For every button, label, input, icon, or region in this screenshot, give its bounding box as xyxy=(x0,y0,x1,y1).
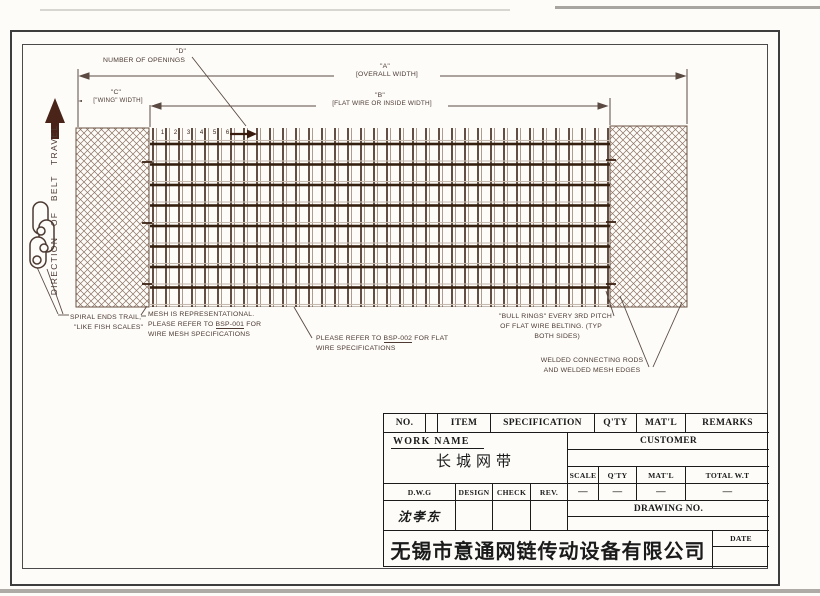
matl-label: MAT'L xyxy=(637,467,686,484)
check-label: CHECK xyxy=(493,484,531,501)
qty-label: Q'TY xyxy=(599,467,637,484)
dim-c-text: ["WING" WIDTH] xyxy=(82,96,154,105)
wire-mesh-pattern xyxy=(150,128,610,307)
dim-d-text: NUMBER OF OPENINGS xyxy=(103,56,185,65)
matl-value: — xyxy=(637,484,686,501)
welded-note-line1: WELDED CONNECTING RODS xyxy=(536,356,648,365)
work-name-label: WORK NAME xyxy=(391,436,484,449)
scale-value: — xyxy=(568,484,599,501)
drawing-no-label: DRAWING NO. xyxy=(568,501,769,517)
title-block-table: NO. ITEM SPECIFICATION Q'TY MAT'L REMARK… xyxy=(383,413,768,567)
company-name: 无锡市意通网链传动设备有限公司 xyxy=(384,531,713,568)
opening-number: 1 xyxy=(156,130,169,136)
dwg-name: 沈孝东 xyxy=(384,501,456,531)
flatwire-note-post: FOR FLAT xyxy=(412,335,448,342)
flatwire-note-pre: PLEASE REFER TO xyxy=(316,335,384,342)
header-remarks: REMARKS xyxy=(686,414,769,433)
flatwire-note-line2: WIRE SPECIFICATIONS xyxy=(316,344,396,353)
header-specification: SPECIFICATION xyxy=(491,414,595,433)
design-value-empty xyxy=(456,501,493,531)
work-name-value: 长城网带 xyxy=(384,450,568,471)
opening-number: 6 xyxy=(221,130,234,136)
direction-of-belt-travel-label: DIRECTION OF BELT TRAVEL xyxy=(49,124,59,296)
customer-label: CUSTOMER xyxy=(568,433,769,450)
dim-a-text: [OVERALL WIDTH] xyxy=(334,70,440,79)
customer-value-empty xyxy=(568,450,769,467)
header-item: ITEM xyxy=(438,414,491,433)
header-sub-col xyxy=(426,414,438,433)
opening-number: 2 xyxy=(169,130,182,136)
mesh-note-pre: PLEASE REFER TO xyxy=(148,321,216,328)
left-wing-hatched xyxy=(76,128,149,307)
mesh-note-line3: WIRE MESH SPECIFICATIONS xyxy=(148,330,250,339)
header-qty: Q'TY xyxy=(595,414,637,433)
welded-note-line2: AND WELDED MESH EDGES xyxy=(536,366,648,375)
bull-rings-note-line3: BOTH SIDES) xyxy=(452,332,580,341)
total-wt-value: — xyxy=(686,484,769,501)
scanned-engineering-drawing: "D" NUMBER OF OPENINGS "A" [OVERALL WIDT… xyxy=(0,0,820,596)
bull-rings-note-line1: "BULL RINGS" EVERY 3RD PITCH xyxy=(452,312,612,321)
opening-number: 3 xyxy=(182,130,195,136)
mesh-note-line2: PLEASE REFER TO BSP-001 FOR xyxy=(148,320,261,329)
opening-number: 5 xyxy=(208,130,221,136)
bsp-001-reference: BSP-001 xyxy=(216,321,245,329)
design-label: DESIGN xyxy=(456,484,493,501)
check-value-empty xyxy=(493,501,531,531)
right-wing-hatched xyxy=(610,126,687,307)
work-name-block: WORK NAME 长城网带 xyxy=(384,433,568,484)
header-no: NO. xyxy=(384,414,426,433)
rev-label: REV. xyxy=(531,484,568,501)
bull-rings-note-line2: OF FLAT WIRE BELTING. (TYP xyxy=(452,322,602,331)
spiral-note-line1: SPIRAL ENDS TRAIL, xyxy=(70,313,141,322)
dim-b-text: [FLAT WIRE OR INSIDE WIDTH] xyxy=(316,99,448,108)
mesh-note-line1: MESH IS REPRESENTATIONAL. xyxy=(148,310,254,319)
total-wt-label: TOTAL W.T xyxy=(686,467,769,484)
bsp-002-reference: BSP-002 xyxy=(384,335,413,343)
drawing-no-value-empty xyxy=(568,517,769,531)
date-label: DATE xyxy=(713,531,769,547)
dim-d-label: "D" xyxy=(168,47,194,56)
mesh-note-post: FOR xyxy=(244,321,261,328)
spiral-note-line2: "LIKE FISH SCALES" xyxy=(74,323,143,332)
opening-numbers: 123456 xyxy=(156,130,246,136)
scale-label: SCALE xyxy=(568,467,599,484)
rev-value-empty xyxy=(531,501,568,531)
opening-number: 4 xyxy=(195,130,208,136)
flatwire-note-line1: PLEASE REFER TO BSP-002 FOR FLAT xyxy=(316,334,448,343)
date-value-empty xyxy=(713,547,769,568)
dwg-label: D.W.G xyxy=(384,484,456,501)
qty-value: — xyxy=(599,484,637,501)
header-matl: MAT'L xyxy=(637,414,686,433)
